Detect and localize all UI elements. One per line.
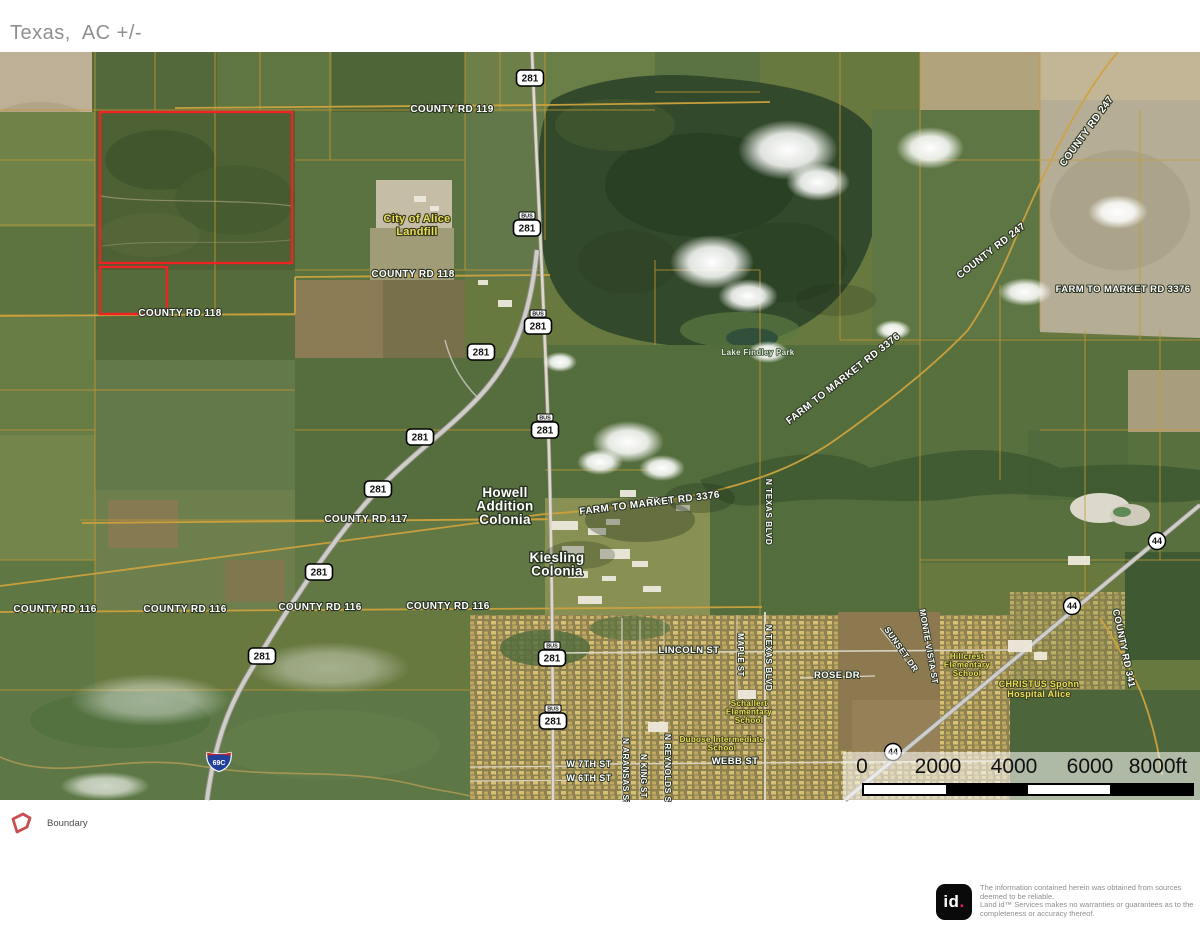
road-label: COUNTY RD 117 (324, 514, 407, 525)
place-label: School (708, 744, 736, 753)
svg-text:281: 281 (370, 485, 387, 496)
highway-shield-us: 281 (517, 70, 544, 86)
svg-text:281: 281 (545, 717, 562, 728)
legend: Boundary (8, 810, 88, 836)
disclaimer-line: completeness or accuracy thereof. (980, 910, 1195, 919)
road-label: COUNTY RD 116 (13, 604, 96, 615)
scalebar-tick-label: 0 (856, 755, 868, 779)
road-label: COUNTY RD 116 (143, 604, 226, 615)
road-label: N TEXAS BLVD (764, 625, 774, 692)
place-label: City of Alice (383, 213, 450, 225)
svg-text:281: 281 (544, 654, 561, 665)
page-title: Texas, AC +/- (10, 22, 142, 45)
highway-shield-c: 44 (1149, 533, 1166, 550)
svg-text:281: 281 (311, 568, 328, 579)
road-label: COUNTY RD 118 (138, 308, 221, 319)
road-label: N KING ST (639, 754, 648, 798)
place-label: Colonia (531, 564, 583, 579)
scalebar-segment (1110, 785, 1192, 794)
map-image: COUNTY RD 119COUNTY RD 118COUNTY RD 118C… (0, 52, 1200, 802)
map-scalebar: 02000400060008000ft (843, 752, 1200, 800)
page: Texas, AC +/- (0, 0, 1200, 927)
scalebar-tick-label: 4000 (991, 755, 1038, 779)
place-label: Hospital Alice (1007, 689, 1070, 699)
land-id-logo: id. (936, 884, 972, 920)
logo-text: id (943, 892, 959, 912)
svg-text:BUS: BUS (521, 214, 533, 220)
road-label: N REYNOLDS ST (663, 734, 673, 802)
place-label: CHRISTUS Spohn (999, 679, 1080, 689)
svg-text:281: 281 (519, 224, 536, 235)
place-label: Landfill (396, 226, 438, 238)
svg-text:BUS: BUS (547, 707, 559, 713)
highway-shield-us: 281 (365, 481, 392, 497)
road-label: W 6TH ST (566, 773, 611, 783)
svg-text:69C: 69C (213, 760, 226, 767)
scalebar-segment (864, 785, 946, 794)
scalebar-bar (862, 783, 1194, 796)
svg-text:281: 281 (522, 74, 539, 85)
svg-text:44: 44 (1067, 601, 1077, 611)
scalebar-tick-label: 6000 (1067, 755, 1114, 779)
place-label: School (953, 669, 981, 678)
road-label: COUNTY RD 119 (410, 104, 493, 115)
scalebar-tick-label: 2000 (915, 755, 962, 779)
road-label: MAPLE ST (736, 633, 745, 677)
place-label: Colonia (479, 512, 531, 527)
highway-shield-us: 281 (407, 429, 434, 445)
road-label: WEBB ST (712, 756, 759, 767)
svg-text:281: 281 (537, 426, 554, 437)
boundary-polygon-icon (8, 810, 34, 836)
road-label: COUNTY RD 116 (406, 601, 489, 612)
svg-text:BUS: BUS (546, 644, 558, 650)
svg-text:BUS: BUS (532, 312, 544, 318)
road-label: ROSE DR (814, 670, 860, 681)
highway-shield-us: 281 (249, 648, 276, 664)
road-label: N ARANSAS ST (621, 738, 631, 802)
road-label: FARM TO MARKET RD 3376 (1056, 284, 1191, 295)
svg-text:281: 281 (473, 348, 490, 359)
highway-shield-us: 281 (306, 564, 333, 580)
road-label: COUNTY RD 118 (371, 269, 454, 280)
svg-text:281: 281 (530, 322, 547, 333)
disclaimer: id. The information contained herein was… (936, 884, 1195, 920)
map-canvas[interactable]: COUNTY RD 119COUNTY RD 118COUNTY RD 118C… (0, 52, 1200, 802)
road-label: N TEXAS BLVD (764, 479, 774, 546)
svg-text:44: 44 (1152, 536, 1162, 546)
place-label: School (735, 716, 763, 725)
road-label: LINCOLN ST (659, 645, 720, 656)
road-label: W 7TH ST (566, 759, 611, 769)
road-label: COUNTY RD 116 (278, 602, 361, 613)
legend-boundary-label: Boundary (47, 818, 88, 829)
svg-text:281: 281 (412, 433, 429, 444)
svg-text:281: 281 (254, 652, 271, 663)
svg-text:BUS: BUS (539, 416, 551, 422)
place-label: Lake Findley Park (721, 348, 794, 357)
highway-shield-c: 44 (1064, 598, 1081, 615)
scalebar-tick-label: 8000ft (1129, 755, 1187, 779)
disclaimer-text: The information contained herein was obt… (980, 884, 1195, 918)
logo-dot: . (959, 892, 964, 912)
highway-shield-us: 281 (468, 344, 495, 360)
scalebar-segment (946, 785, 1028, 794)
scalebar-segment (1028, 785, 1110, 794)
